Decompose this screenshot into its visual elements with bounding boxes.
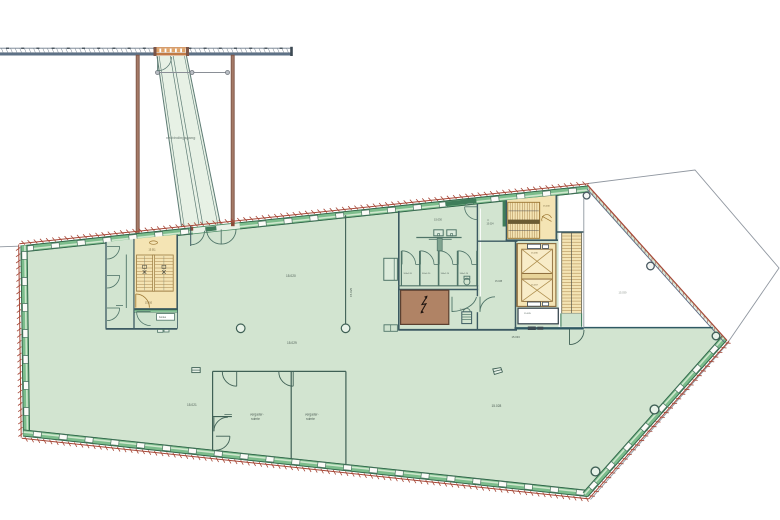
svg-text:15.034: 15.034 xyxy=(487,224,495,226)
svg-text:ruimte: ruimte xyxy=(251,417,260,421)
svg-text:15.010: 15.010 xyxy=(145,302,153,304)
svg-text:900x1.20: 900x1.20 xyxy=(422,273,431,275)
svg-text:15.025: 15.025 xyxy=(349,287,353,297)
svg-text:15.039: 15.039 xyxy=(619,291,627,295)
svg-text:15.021: 15.021 xyxy=(187,403,197,407)
svg-text:900x1.20: 900x1.20 xyxy=(404,273,413,275)
svg-text:15.036: 15.036 xyxy=(531,253,538,255)
svg-text:vergader-: vergader- xyxy=(305,413,319,417)
svg-text:15.028: 15.028 xyxy=(492,404,502,408)
svg-text:tr: tr xyxy=(488,219,490,222)
svg-text:bordes: bordes xyxy=(159,316,167,319)
svg-text:15.040: 15.040 xyxy=(543,206,550,208)
svg-text:vergader-: vergader- xyxy=(250,413,264,417)
svg-text:900x1.20: 900x1.20 xyxy=(460,273,469,275)
svg-text:15.020: 15.020 xyxy=(286,274,296,278)
svg-text:15.035: 15.035 xyxy=(524,313,531,315)
svg-text:15.032: 15.032 xyxy=(460,309,467,311)
svg-text:15.038: 15.038 xyxy=(495,281,503,283)
svg-text:15.033: 15.033 xyxy=(512,335,521,339)
svg-text:15.030: 15.030 xyxy=(434,218,442,222)
svg-text:15.029: 15.029 xyxy=(287,341,297,345)
svg-text:ruimte: ruimte xyxy=(306,417,315,421)
svg-text:15.037: 15.037 xyxy=(531,285,538,287)
svg-text:15.011: 15.011 xyxy=(149,249,157,252)
svg-text:verbindingsgang: verbindingsgang xyxy=(166,135,195,140)
svg-text:900x1.20: 900x1.20 xyxy=(441,273,450,275)
